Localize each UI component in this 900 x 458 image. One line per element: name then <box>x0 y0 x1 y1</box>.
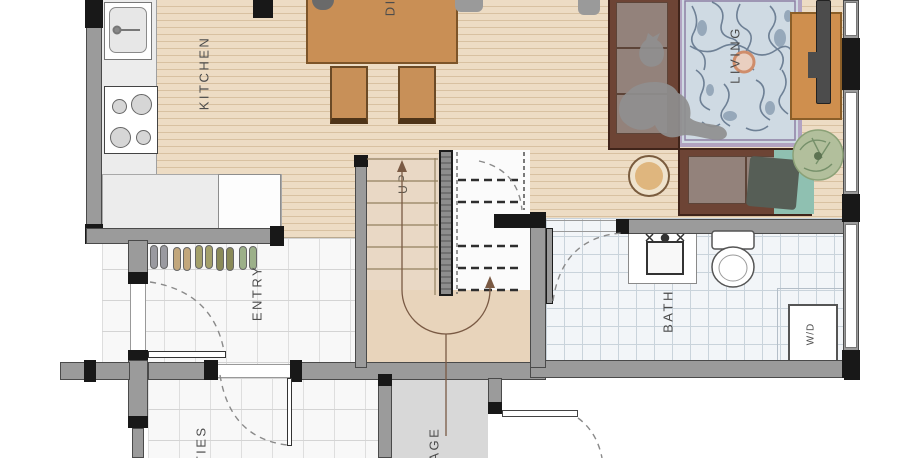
dining-chair <box>455 0 483 12</box>
wall-cap <box>530 212 546 228</box>
sofa-cushion <box>688 156 746 204</box>
bath-doorway-lines <box>546 220 618 232</box>
kitchen-island-cabinet <box>218 174 281 232</box>
burner-icon <box>131 94 152 115</box>
garage-door-leaf <box>502 410 578 417</box>
wall-bath-bottom <box>530 360 860 378</box>
ottoman-top <box>635 162 663 190</box>
window <box>845 224 857 348</box>
utilities-floor <box>148 378 378 458</box>
room-label-entry: ENTRY <box>250 265 265 321</box>
stair-landing <box>366 288 530 364</box>
wall-cap <box>128 416 148 428</box>
window <box>845 92 857 192</box>
wall-right-black <box>842 350 860 378</box>
shoe-icon <box>173 247 181 271</box>
wall-cap <box>378 374 392 386</box>
wall-left-black-top <box>85 0 103 28</box>
window <box>845 2 857 36</box>
wall-entry-left-bottom <box>132 428 144 458</box>
shoe-icon <box>150 245 158 269</box>
wall-stair-left <box>355 156 367 368</box>
floor-plan: KITCHEN DINING LIVING UP ENTRY UTILITIES… <box>0 0 900 458</box>
wall-kitchen-entry <box>86 228 284 244</box>
front-door-leaf <box>148 351 226 358</box>
shoe-icon <box>226 247 234 271</box>
bath-door-leaf <box>546 228 553 304</box>
shoe-icon <box>160 245 168 269</box>
appliance-label-wd: W/D <box>806 323 817 345</box>
wall-bottom-mid <box>290 362 546 380</box>
stair-label-up: UP <box>396 172 410 194</box>
burner-icon <box>136 130 151 145</box>
tv <box>816 0 831 104</box>
sofa-pillow <box>746 156 800 210</box>
shoe-icon <box>239 246 247 270</box>
dining-chair <box>330 66 368 124</box>
room-label-utilities: UTILITIES <box>194 425 209 458</box>
wall-cap <box>84 360 96 382</box>
sofa-cushion <box>616 94 668 134</box>
wall-stub-pantry <box>253 0 273 18</box>
wall-cap <box>488 402 502 414</box>
wall-cap <box>270 226 284 246</box>
wall-right-black <box>842 194 860 222</box>
stair-divider <box>439 150 453 296</box>
wall-cap <box>128 272 148 284</box>
burner-icon <box>112 99 127 114</box>
front-door-opening <box>130 284 146 350</box>
wall-bath-top <box>616 219 844 234</box>
room-label-dining: DINING <box>383 0 398 16</box>
shoe-icon <box>183 247 191 271</box>
shoe-icon <box>205 245 213 269</box>
dining-chair <box>398 66 436 124</box>
wall-post <box>204 360 218 380</box>
kitchen-sink-basin <box>109 7 147 53</box>
shoe-icon <box>195 245 203 269</box>
wall-entry-left-lower <box>128 360 148 420</box>
wall-cap <box>616 219 629 234</box>
dining-chair <box>578 0 600 15</box>
burner-icon <box>110 127 131 148</box>
wall-right-black <box>842 38 860 90</box>
shoe-icon <box>216 247 224 271</box>
sofa-cushion <box>616 2 668 48</box>
room-label-garage: GARAGE <box>427 427 442 458</box>
room-label-bath: BATH <box>661 289 676 333</box>
sofa-cushion <box>616 48 668 94</box>
utilities-door-opening <box>218 364 290 378</box>
bath-vanity-basin <box>646 241 684 275</box>
wall-hall <box>530 212 546 368</box>
wall-garage-left <box>378 378 392 458</box>
room-label-kitchen: KITCHEN <box>197 36 212 111</box>
wall-cap <box>354 155 368 167</box>
room-label-living: LIVING <box>728 26 743 84</box>
wood-tile-transition <box>282 237 355 238</box>
wall-left <box>86 0 102 244</box>
utilities-door-leaf <box>287 378 292 446</box>
tv-stand <box>808 52 818 78</box>
